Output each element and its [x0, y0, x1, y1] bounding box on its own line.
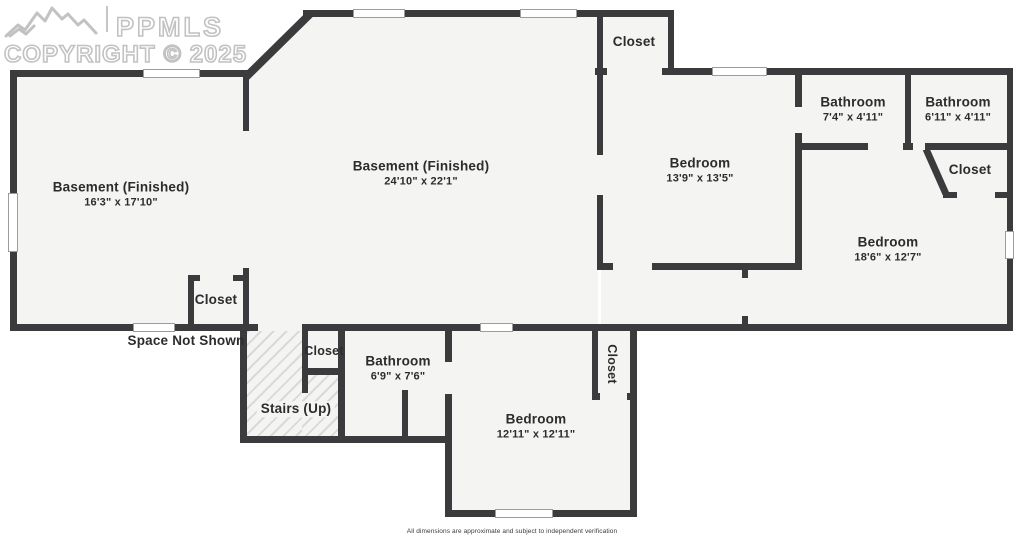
wall-segment: [668, 10, 674, 75]
wall-segment: [445, 324, 452, 517]
room-label-bathroom-south: Bathroom 6'9" x 7'6": [365, 353, 430, 382]
room-name: Closet: [605, 344, 619, 383]
room-dimensions: 18'6" x 12'7": [854, 251, 921, 264]
window: [8, 193, 18, 252]
watermark-brand: PPMLS: [116, 12, 224, 43]
room-label-closet-east: Closet: [949, 162, 991, 178]
room-label-basement-left: Basement (Finished) 16'3" x 17'10": [53, 179, 190, 208]
door-opening: [445, 362, 452, 394]
window: [353, 9, 405, 18]
room-label-bedroom-ne: Bedroom 13'9" x 13'5": [666, 155, 733, 184]
room-name: Bedroom: [666, 155, 733, 171]
label-space-not-shown: Space Not Shown: [127, 333, 244, 349]
watermark-copyright: COPYRIGHT © 2025: [4, 41, 247, 69]
wall-segment: [905, 68, 911, 150]
room-dimensions: 13'9" x 13'5": [666, 172, 733, 185]
room-label-bathroom-ne1: Bathroom 7'4" x 4'11": [820, 94, 885, 123]
room-label-basement-main: Basement (Finished) 24'10" x 22'1": [353, 158, 490, 187]
door-opening: [607, 68, 662, 75]
room-label-bathroom-ne2: Bathroom 6'11" x 4'11": [925, 94, 991, 123]
room-dimensions: 16'3" x 17'10": [53, 196, 190, 209]
room-dimensions: 7'4" x 4'11": [820, 111, 885, 124]
door-opening: [913, 143, 925, 150]
wall-segment: [402, 390, 408, 443]
door-opening: [613, 263, 652, 270]
window: [520, 9, 577, 18]
room-name: Basement (Finished): [353, 158, 490, 174]
room-label-bedroom-south: Bedroom 12'11" x 12'11": [497, 411, 576, 440]
room-label-closet-south: Closet: [605, 344, 619, 383]
door-opening: [258, 324, 302, 331]
room-name: Bedroom: [497, 411, 576, 427]
watermark: PPMLS COPYRIGHT © 2025: [4, 4, 247, 69]
room-name: Space Not Shown: [127, 333, 244, 349]
floor-plan-canvas: PPMLS COPYRIGHT © 2025 Basement (Finishe…: [0, 0, 1024, 539]
wall-segment: [188, 275, 194, 331]
wall-segment: [630, 324, 637, 517]
window: [1005, 231, 1014, 259]
wall-segment: [10, 70, 250, 77]
wall-segment: [302, 375, 308, 393]
room-label-closet-left: Closet: [195, 292, 237, 308]
door-opening: [200, 275, 233, 281]
room-name: Bedroom: [854, 234, 921, 250]
room-name: Basement (Finished): [53, 179, 190, 195]
room-label-stairs-up: Stairs (Up): [257, 401, 335, 417]
wall-segment: [795, 143, 1013, 150]
room-name: Closet: [304, 344, 343, 358]
room-dimensions: 6'11" x 4'11": [925, 111, 991, 124]
room-dimensions: 12'11" x 12'11": [497, 428, 576, 441]
room-dimensions: 24'10" x 22'1": [353, 175, 490, 188]
door-opening: [957, 192, 995, 198]
window: [133, 323, 175, 332]
mountains-logo-icon: [4, 4, 100, 40]
wall-segment: [1007, 68, 1013, 331]
door-opening: [795, 107, 802, 133]
window: [143, 69, 200, 78]
room-label-closet-stairs: Closet: [304, 344, 343, 358]
wall-segment: [243, 70, 249, 131]
diagonal-walls: [0, 0, 1024, 539]
door-opening: [600, 393, 627, 400]
window: [480, 323, 513, 332]
room-name: Stairs (Up): [257, 401, 335, 417]
window: [712, 67, 767, 76]
wall-segment: [592, 331, 598, 400]
door-opening: [868, 143, 903, 150]
disclaimer-text: All dimensions are approximate and subje…: [0, 528, 1024, 535]
door-opening: [597, 155, 603, 195]
window: [495, 509, 553, 518]
room-label-bedroom-east: Bedroom 18'6" x 12'7": [854, 234, 921, 263]
room-name: Bathroom: [365, 353, 430, 369]
watermark-divider: [106, 6, 108, 32]
wall-segment: [240, 436, 452, 443]
wall-segment: [795, 68, 802, 270]
room-name: Closet: [613, 34, 655, 50]
room-label-closet-top: Closet: [613, 34, 655, 50]
room-name: Closet: [195, 292, 237, 308]
room-name: Closet: [949, 162, 991, 178]
room-name: Bathroom: [925, 94, 991, 110]
door-opening: [742, 278, 748, 316]
room-dimensions: 6'9" x 7'6": [365, 370, 430, 383]
wall-segment: [597, 10, 603, 75]
room-name: Bathroom: [820, 94, 885, 110]
